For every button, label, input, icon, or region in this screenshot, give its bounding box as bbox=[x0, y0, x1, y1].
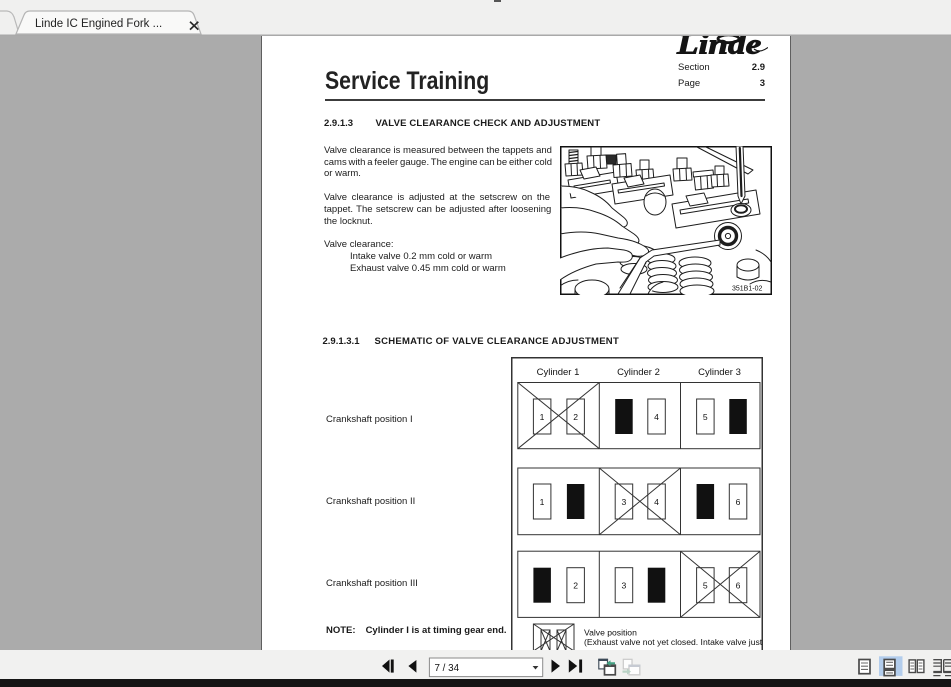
svg-text:3: 3 bbox=[622, 497, 627, 507]
svg-text:1: 1 bbox=[540, 497, 545, 507]
svg-text:4: 4 bbox=[654, 412, 659, 422]
svg-text:6: 6 bbox=[736, 497, 741, 507]
svg-text:5: 5 bbox=[703, 581, 708, 591]
svg-text:2: 2 bbox=[573, 412, 578, 422]
svg-text:7 / 34: 7 / 34 bbox=[435, 663, 460, 674]
svg-text:Cylinder 1: Cylinder 1 bbox=[537, 367, 580, 378]
svg-text:(Exhaust valve not yet closed.: (Exhaust valve not yet closed. Intake va… bbox=[584, 637, 763, 647]
svg-text:Valve position: Valve position bbox=[584, 628, 637, 638]
svg-text:4: 4 bbox=[654, 497, 659, 507]
svg-text:3: 3 bbox=[622, 581, 627, 591]
svg-text:5: 5 bbox=[703, 412, 708, 422]
svg-text:Cylinder 3: Cylinder 3 bbox=[698, 367, 741, 378]
svg-text:351B1-02: 351B1-02 bbox=[732, 286, 762, 293]
svg-text:Cylinder 2: Cylinder 2 bbox=[617, 367, 660, 378]
svg-text:1: 1 bbox=[540, 412, 545, 422]
svg-text:6: 6 bbox=[736, 581, 741, 591]
svg-text:2: 2 bbox=[573, 581, 578, 591]
